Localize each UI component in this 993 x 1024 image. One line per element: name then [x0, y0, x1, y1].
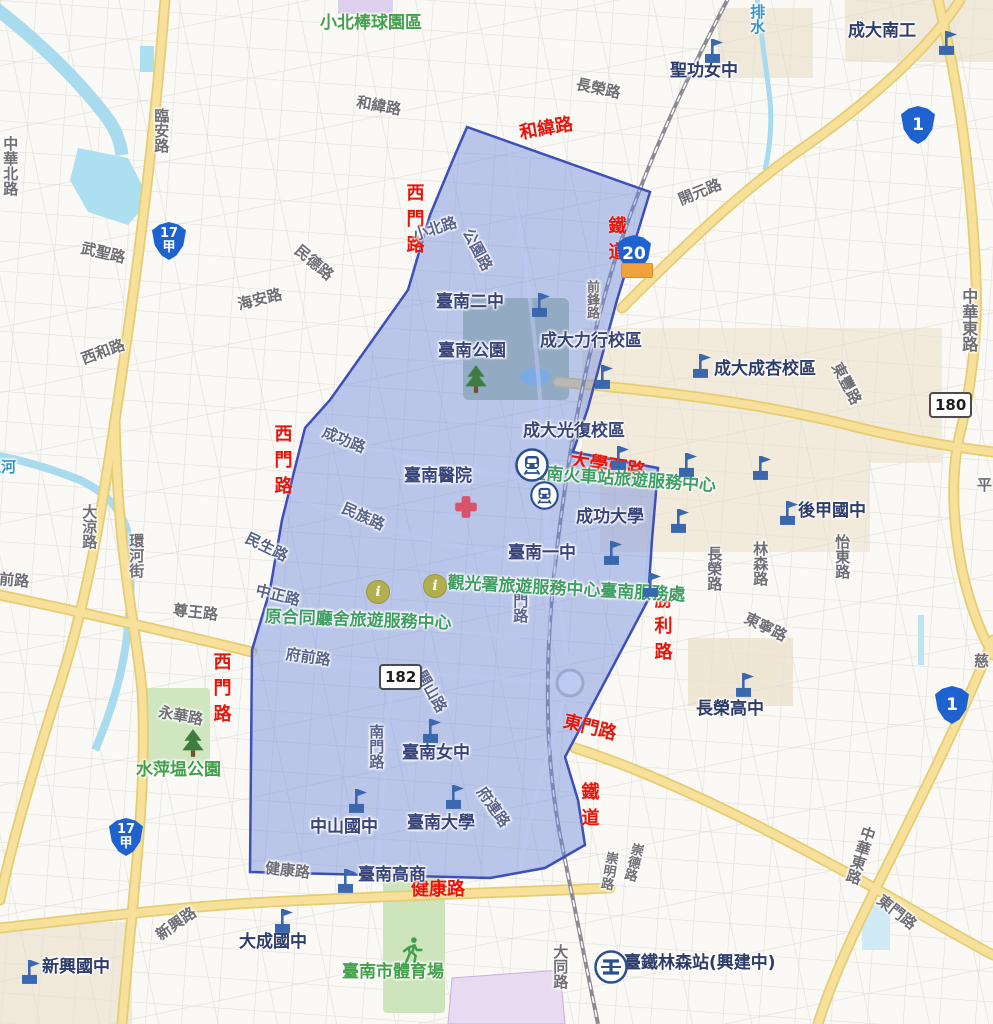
- route-shield: 1: [935, 686, 969, 724]
- road-label: 東寧路: [742, 610, 790, 644]
- road-label: 大同路: [552, 944, 568, 989]
- road-label: 成功路: [320, 424, 368, 456]
- waterway-label: 運河: [0, 459, 16, 475]
- school-flag-icon: [775, 498, 801, 528]
- road-label: 長榮路: [575, 76, 622, 101]
- route-shield: 182: [379, 664, 422, 690]
- road-label: 怡東路: [834, 534, 850, 579]
- place-label: 臺南女中: [402, 744, 470, 762]
- road-label: 臨安路: [153, 108, 169, 153]
- place-label: 新興國中: [42, 958, 110, 976]
- road-label: 大涼路: [81, 504, 97, 549]
- route-number: 甲: [119, 837, 132, 851]
- school-flag-icon: [934, 28, 960, 58]
- road-label: 府連路: [474, 784, 513, 830]
- road-label: 崇明路: [597, 850, 618, 891]
- road-label: 民族路: [339, 500, 387, 533]
- place-label: 中山國中: [310, 818, 378, 836]
- park-label: 臺南市體育場: [342, 963, 444, 981]
- road-label: 東門路: [874, 892, 919, 932]
- road-label: 海安路: [236, 286, 284, 313]
- route-tag-icon: [621, 263, 653, 278]
- route-number: 1: [912, 117, 924, 134]
- school-flag-icon: [270, 906, 296, 936]
- park-label: 水萍塭公園: [136, 761, 221, 779]
- road-label: 南門路: [368, 724, 384, 769]
- place-label: 臺南公園: [438, 342, 506, 360]
- place-label: 成大南工: [848, 22, 916, 40]
- school-flag-icon: [606, 443, 632, 473]
- train-station-icon: [515, 448, 549, 482]
- place-label: 成大力行校區: [540, 332, 642, 350]
- road-label: 慈: [974, 653, 989, 669]
- road-label: 公園路: [460, 226, 495, 273]
- route-number: 1: [946, 697, 958, 714]
- info-icon: i: [423, 574, 447, 598]
- road-label: 中華北路: [2, 136, 18, 196]
- road-label: 民德路: [292, 242, 337, 283]
- road-label: 長榮路: [706, 546, 722, 591]
- place-label: 臺南一中: [508, 544, 576, 562]
- school-flag-icon: [333, 866, 359, 896]
- school-flag-icon: [674, 450, 700, 480]
- place-label: 臺南二中: [436, 293, 504, 311]
- road-annotation: 東門路: [561, 712, 618, 744]
- service-center-label: 原合同廳舍旅遊服務中心: [264, 608, 452, 633]
- road-label: 永華路: [157, 704, 204, 728]
- route-number: 180: [935, 396, 966, 414]
- road-annotation: 西門路: [404, 183, 423, 261]
- route-shield: 180: [929, 392, 972, 418]
- park-tree-icon: [180, 728, 206, 758]
- road-annotation: 鐵道: [579, 782, 598, 834]
- school-flag-icon: [666, 506, 692, 536]
- road-label: 環河街: [128, 533, 144, 578]
- road-label: 前鋒路: [584, 280, 598, 319]
- sports-field-icon: [397, 936, 425, 964]
- route-number: 17: [160, 227, 178, 241]
- road-label: 健康路: [264, 860, 310, 881]
- road-label: 武聖路: [79, 240, 127, 266]
- road-label: 東豐路: [829, 360, 864, 407]
- place-label: 臺鐵林森站(興建中): [624, 954, 776, 972]
- info-glyph: i: [432, 578, 437, 594]
- annotation-layer: 和緯路西門路鐵道西門路大學西路勝利路東門路鐵道健康路西門路中華北路臨安路武聖路西…: [0, 0, 993, 1024]
- route-number: 20: [622, 246, 646, 263]
- road-annotation: 西門路: [272, 424, 291, 502]
- route-shield: 1: [901, 106, 935, 144]
- route-shield: 17甲: [152, 222, 186, 260]
- school-flag-icon: [731, 670, 757, 700]
- school-flag-icon: [688, 351, 714, 381]
- school-flag-icon: [344, 786, 370, 816]
- road-annotation: 和緯路: [518, 115, 575, 144]
- road-label: 林森路: [752, 541, 768, 586]
- road-label: 尊王路: [172, 602, 218, 623]
- route-number: 17: [117, 823, 135, 837]
- road-annotation: 西門路: [211, 652, 230, 730]
- park-tree-icon: [463, 364, 489, 394]
- place-label: 臺南大學: [407, 814, 475, 832]
- road-label: 和緯路: [355, 94, 402, 118]
- road-label: 新興路: [153, 904, 199, 943]
- route-number: 182: [385, 668, 416, 686]
- tra-station-icon: [594, 950, 628, 984]
- school-flag-icon: [748, 453, 774, 483]
- place-label: 長榮高中: [696, 700, 764, 718]
- place-label: 成大光復校區: [523, 422, 625, 440]
- school-flag-icon: [527, 290, 553, 320]
- school-flag-icon: [17, 957, 43, 987]
- road-label: 中華東路: [960, 288, 977, 352]
- route-shield: 17甲: [109, 818, 143, 856]
- school-flag-icon: [590, 362, 616, 392]
- place-label: 成大成杏校區: [714, 360, 816, 378]
- place-label: 臺南醫院: [404, 467, 472, 485]
- school-flag-icon: [418, 716, 444, 746]
- place-label: 成功大學: [576, 508, 644, 526]
- park-label: 小北棒球園區: [320, 14, 422, 32]
- place-label: 後甲國中: [798, 502, 866, 520]
- road-label: 西和路: [79, 337, 127, 368]
- road-label: 府前路: [285, 646, 332, 668]
- place-label: 臺南高商: [358, 866, 426, 884]
- road-label: 崇德路: [621, 841, 644, 882]
- road-label: 民生路: [243, 530, 291, 564]
- school-flag-icon: [700, 36, 726, 66]
- hospital-cross-icon: [453, 494, 479, 520]
- school-flag-icon: [441, 782, 467, 812]
- road-label: 中華東路: [843, 824, 877, 886]
- road-label: 中正路: [254, 582, 302, 609]
- road-label: 開元路: [676, 176, 724, 208]
- waterway-label: 排水: [749, 4, 765, 34]
- school-flag-icon: [599, 538, 625, 568]
- school-flag-icon: [638, 570, 664, 600]
- route-number: 甲: [162, 241, 175, 255]
- road-label: 前路: [0, 571, 30, 590]
- road-label: 平: [977, 477, 992, 493]
- info-icon: i: [366, 580, 390, 604]
- train-station-icon: [530, 481, 559, 510]
- map-canvas[interactable]: 和緯路西門路鐵道西門路大學西路勝利路東門路鐵道健康路西門路中華北路臨安路武聖路西…: [0, 0, 993, 1024]
- info-glyph: i: [375, 584, 380, 600]
